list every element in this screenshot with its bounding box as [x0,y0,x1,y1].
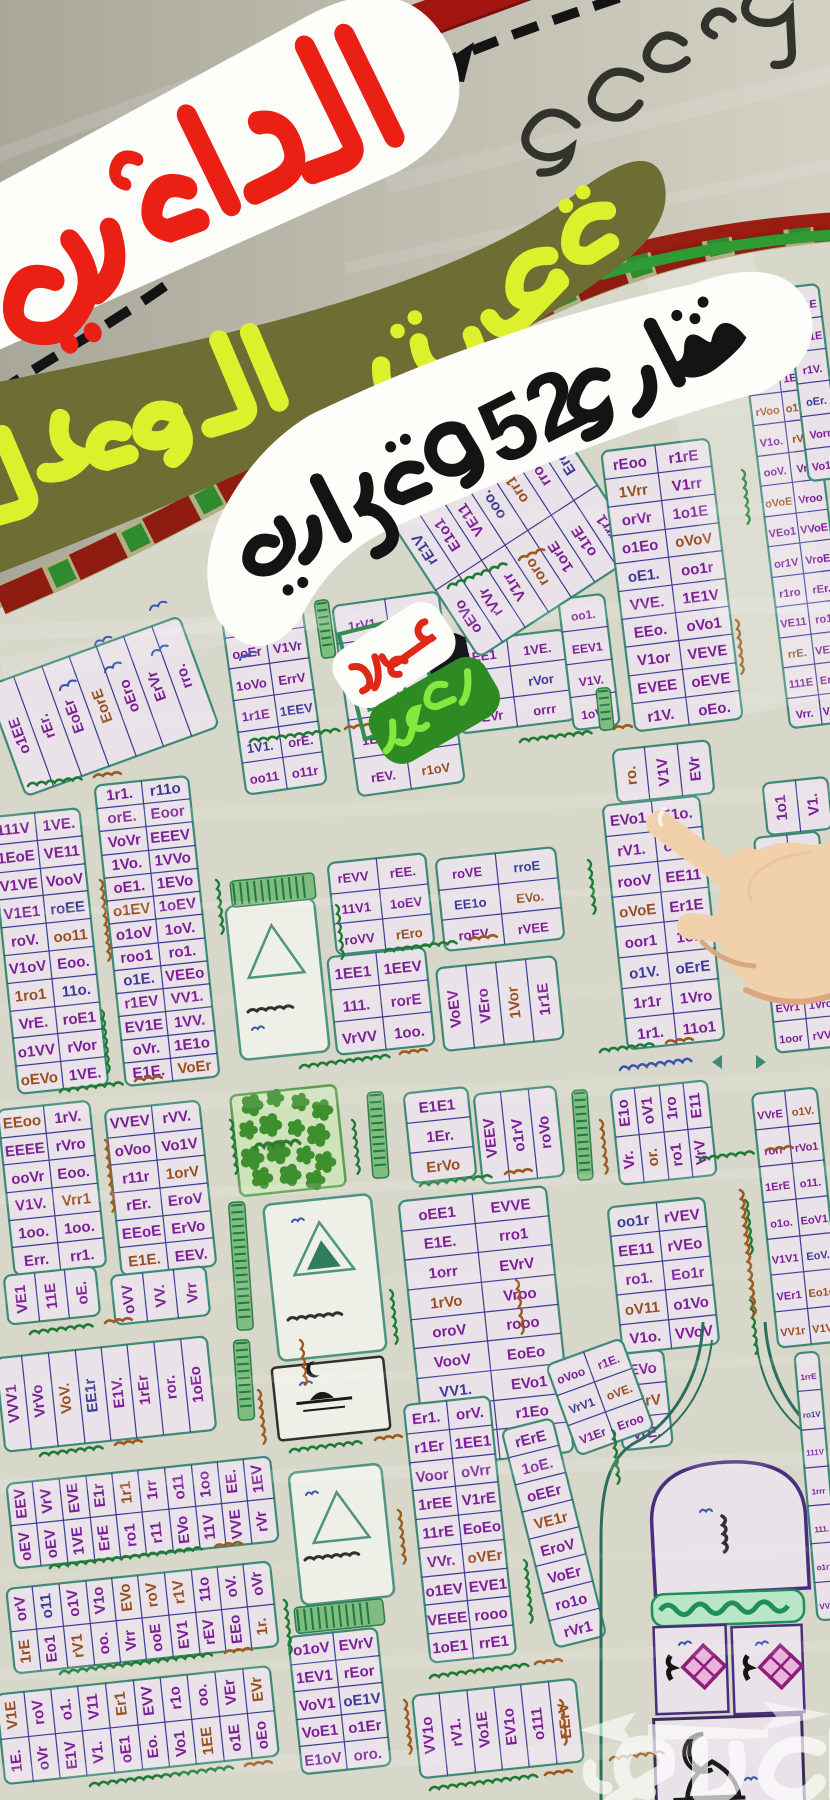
svg-text:roVE: roVE [451,864,483,882]
svg-text:Vo1: Vo1 [171,1730,191,1758]
svg-text:o111: o111 [528,1707,548,1741]
svg-text:Er1: Er1 [111,1691,130,1717]
svg-text:o1E: o1E [225,1723,245,1752]
svg-text:roV: roV [29,1699,49,1726]
svg-text:o1Er: o1Er [347,1717,382,1737]
svg-text:o1V.: o1V. [791,1105,814,1119]
svg-text:EEV: EEV [11,1488,31,1520]
svg-text:roVo: roVo [535,1115,555,1150]
svg-text:r1V: r1V [169,1579,188,1605]
svg-text:oo1r: oo1r [616,1211,650,1231]
svg-text:Eoo.: Eoo. [56,953,90,973]
svg-text:rVVr: rVVr [812,1029,830,1043]
svg-text:roEV: roEV [458,925,490,943]
svg-text:Eo1o: Eo1o [808,1286,830,1301]
svg-text:1oo.: 1oo. [17,1223,49,1243]
svg-text:1VV.: 1VV. [173,1012,206,1032]
svg-text:ooE: ooE [147,1623,167,1653]
svg-text:rroE: rroE [513,858,541,876]
svg-text:Vrr: Vrr [121,1629,140,1652]
svg-text:ErVo: ErVo [171,1218,206,1238]
svg-text:oVr.: oVr. [132,1039,161,1059]
svg-text:V1E: V1E [2,1700,22,1730]
svg-text:1VE: 1VE [68,1526,88,1556]
svg-text:1ro1: 1ro1 [14,986,47,1006]
svg-text:V1rE: V1rE [461,1489,497,1509]
svg-text:ErVo: ErVo [426,1156,461,1176]
svg-text:1rE: 1rE [16,1638,35,1664]
svg-text:1rVo: 1rVo [429,1292,463,1312]
svg-text:rV1.: rV1. [447,1717,467,1747]
svg-text:oor1: oor1 [624,932,658,952]
svg-text:oo11: oo11 [53,926,89,946]
svg-text:1rEr: 1rEr [134,1374,154,1406]
svg-text:ErE: ErE [94,1524,114,1551]
svg-text:o11.: o11. [799,1176,822,1190]
svg-text:oroV: oroV [431,1321,467,1341]
svg-text:orV: orV [11,1595,31,1622]
svg-text:ro1: ro1 [667,1142,686,1167]
svg-text:VrVV: VrVV [341,1028,378,1049]
svg-text:1EE: 1EE [198,1726,218,1756]
svg-text:rVr: rVr [253,1510,272,1533]
svg-text:ro1: ro1 [121,1523,140,1548]
svg-text:Vr.: Vr. [620,1150,639,1170]
svg-text:V11: V11 [84,1693,104,1721]
svg-text:roVV: roVV [344,930,376,948]
svg-text:o1E.: o1E. [122,970,155,990]
svg-text:oEo: oEo [252,1720,272,1750]
svg-text:V1.: V1. [89,1740,108,1764]
svg-text:11o: 11o [195,1576,215,1603]
svg-text:Vorr: Vorr [809,427,830,442]
svg-text:oV.: oV. [222,1575,241,1599]
svg-text:11rE: 11rE [422,1523,455,1543]
svg-text:rV1.: rV1. [616,841,646,861]
svg-text:ror.: ror. [161,1374,180,1400]
svg-text:EVr: EVr [248,1676,268,1703]
svg-text:r11o: r11o [149,780,181,800]
svg-text:1r1.: 1r1. [636,1024,664,1044]
svg-text:1orV: 1orV [165,1163,200,1183]
svg-text:rVro: rVro [55,1135,87,1155]
svg-text:Err.: Err. [23,1251,50,1271]
svg-text:EEo: EEo [226,1614,246,1645]
svg-text:1ro: 1ro [662,1096,681,1121]
svg-text:o1.: o1. [57,1698,76,1721]
svg-text:r1o: r1o [166,1685,185,1710]
svg-text:o1rV: o1rV [508,1118,528,1153]
svg-text:rVor: rVor [66,1037,98,1057]
svg-text:1Vo.: 1Vo. [111,854,143,874]
svg-text:rooo: rooo [474,1605,509,1625]
svg-text:VoVr: VoVr [107,831,142,851]
svg-text:V1V1: V1V1 [812,1321,830,1336]
svg-text:Eo1: Eo1 [41,1634,61,1663]
svg-text:oo.: oo. [193,1683,212,1707]
svg-text:roV: roV [142,1581,162,1608]
svg-text:1oor: 1oor [779,1032,805,1047]
svg-text:EV1: EV1 [174,1620,194,1650]
svg-text:ro1.: ro1. [168,942,197,962]
svg-text:11o.: 11o. [61,981,92,1001]
svg-text:1r.: 1r. [253,1617,272,1636]
svg-text:Eoo.: Eoo. [57,1163,91,1183]
svg-text:r11r: r11r [121,1168,150,1188]
svg-text:rEE.: rEE. [389,863,416,881]
svg-text:VVE: VVE [226,1508,246,1540]
svg-text:V1o.: V1o. [629,1328,662,1348]
svg-text:Eo.: Eo. [143,1734,162,1759]
svg-text:oEV: oEV [41,1528,61,1559]
svg-text:1oo.: 1oo. [63,1218,95,1238]
svg-text:1rrr: 1rrr [811,1486,826,1496]
svg-text:o1V.: o1V. [628,963,660,983]
svg-text:rEV: rEV [200,1618,220,1645]
svg-text:Vo11: Vo11 [811,459,830,474]
svg-text:oVr: oVr [248,1571,267,1597]
svg-text:rVEo: rVEo [667,1235,704,1256]
svg-text:oV11: oV11 [624,1299,661,1320]
svg-text:rVor: rVor [527,671,554,689]
svg-text:VVro: VVro [819,1601,830,1612]
svg-text:oo.: oo. [94,1631,113,1655]
svg-text:oE1: oE1 [116,1735,136,1764]
svg-text:Er1.: Er1. [411,1408,441,1428]
svg-text:Er1E: Er1E [669,896,705,916]
svg-text:E1E.: E1E. [423,1233,457,1253]
svg-text:VEo1: VEo1 [822,703,830,718]
svg-text:oEV: oEV [15,1531,35,1562]
svg-text:r1V.: r1V. [802,363,823,377]
svg-text:rrE1: rrE1 [478,1633,510,1653]
svg-text:o1r1: o1r1 [816,1562,830,1572]
svg-text:1oo.: 1oo. [393,1023,425,1043]
svg-text:11o1: 11o1 [682,1018,717,1038]
svg-text:V1V: V1V [654,757,674,787]
svg-text:1Vrr: 1Vrr [618,481,649,501]
svg-text:EVrV: EVrV [338,1634,375,1655]
svg-text:roV.: roV. [10,931,39,951]
svg-text:111.: 111. [814,1524,829,1534]
svg-text:1rEE: 1rEE [417,1494,453,1514]
svg-text:rV1: rV1 [68,1633,87,1659]
svg-text:r1V.: r1V. [646,706,675,726]
svg-text:V1o: V1o [90,1586,110,1615]
svg-text:Vrr.: Vrr. [795,708,814,722]
svg-text:VoEr: VoEr [177,1057,213,1077]
svg-text:rro1: rro1 [498,1225,529,1245]
svg-text:VEr: VEr [221,1678,241,1706]
svg-text:VrE.: VrE. [18,1014,49,1034]
svg-text:roo1: roo1 [120,947,154,967]
svg-text:1r1.: 1r1. [105,785,133,805]
svg-text:11V: 11V [200,1513,220,1541]
svg-text:EVo: EVo [116,1583,136,1613]
svg-text:EEV.: EEV. [174,1245,208,1265]
svg-text:rEro: rEro [395,925,423,943]
svg-text:rVo1: rVo1 [794,1141,819,1155]
svg-text:1r1r: 1r1r [632,993,662,1013]
svg-text:1VE.: 1VE. [68,1064,102,1084]
svg-text:ro.: ro. [622,765,641,786]
svg-text:ro1V: ro1V [803,1409,822,1420]
svg-text:r1Er: r1Er [413,1437,445,1457]
svg-text:VrV: VrV [691,1139,711,1166]
svg-text:E1o: E1o [614,1098,634,1127]
svg-text:or.: or. [644,1147,663,1167]
svg-text:E11: E11 [686,1092,706,1120]
svg-text:o1V: o1V [64,1589,84,1618]
svg-text:o1o.: o1o. [770,1217,794,1231]
svg-text:r11: r11 [147,1521,166,1544]
svg-text:VrV: VrV [37,1488,57,1515]
svg-text:EVr: EVr [686,755,706,782]
svg-text:EVo: EVo [174,1515,194,1545]
svg-text:ooVr: ooVr [10,1168,45,1188]
svg-text:oV1: oV1 [638,1096,658,1125]
svg-text:orV.: orV. [455,1404,484,1424]
svg-text:1oV.: 1oV. [164,919,196,939]
svg-text:1Er.: 1Er. [426,1127,455,1147]
svg-text:EVV: EVV [138,1685,158,1717]
svg-text:E1E.: E1E. [127,1250,161,1270]
svg-text:1rrE: 1rrE [800,1372,817,1382]
svg-text:o11: o11 [37,1593,57,1620]
svg-text:rr1.: rr1. [69,1246,95,1265]
svg-text:oE1.: oE1. [113,877,146,897]
svg-text:oErE: oErE [675,957,712,978]
